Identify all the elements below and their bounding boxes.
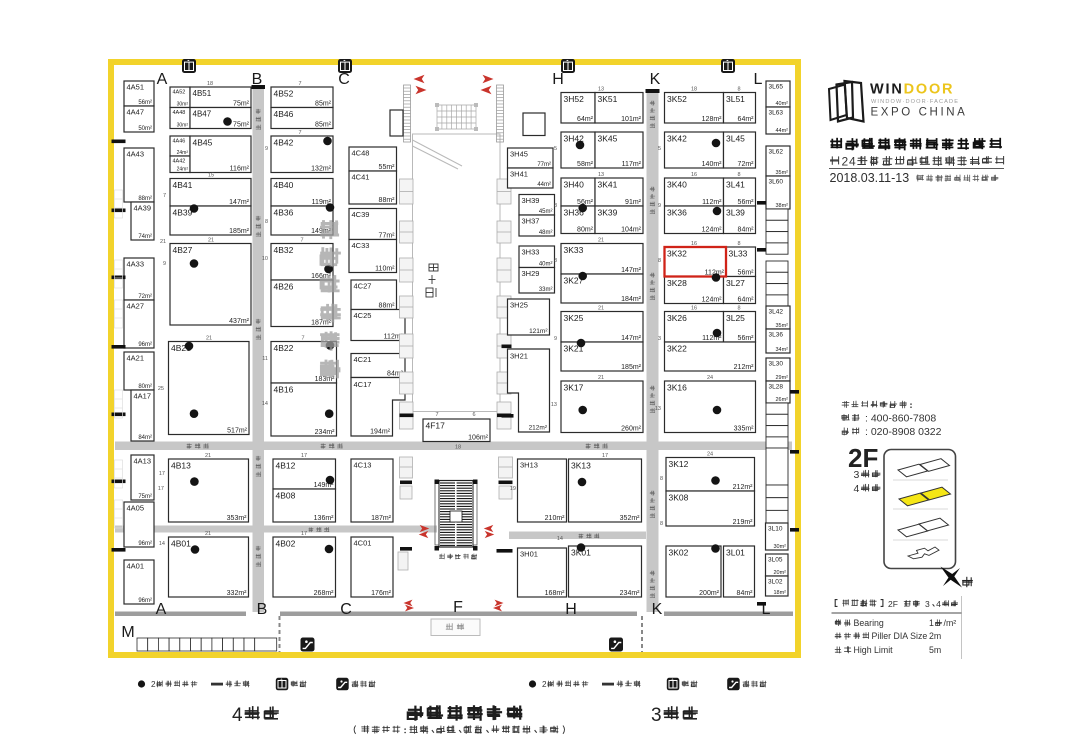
svg-text:2F: 2F — [888, 599, 898, 609]
svg-text:185m²: 185m² — [621, 364, 642, 371]
svg-text:4A13: 4A13 — [134, 457, 152, 466]
svg-text:3L39: 3L39 — [726, 208, 745, 218]
svg-text:9: 9 — [658, 203, 661, 209]
svg-text:4F17: 4F17 — [426, 421, 446, 431]
svg-text:80m²: 80m² — [577, 226, 594, 233]
svg-text:3K32: 3K32 — [667, 249, 687, 259]
svg-text:3L60: 3L60 — [769, 179, 784, 186]
svg-text:4: 4 — [849, 154, 856, 168]
svg-text:29m²: 29m² — [775, 375, 788, 381]
svg-text:335m²: 335m² — [734, 425, 755, 432]
svg-text:3L33: 3L33 — [729, 249, 748, 259]
svg-text:3K13: 3K13 — [571, 461, 591, 471]
svg-text:72m²: 72m² — [738, 161, 755, 168]
svg-text:3K39: 3K39 — [598, 208, 618, 218]
svg-text:91m²: 91m² — [625, 199, 642, 206]
svg-text:56m²: 56m² — [138, 100, 152, 106]
svg-text:5: 5 — [554, 146, 557, 152]
svg-text:88m²: 88m² — [138, 196, 152, 202]
svg-text:3H21: 3H21 — [510, 352, 528, 361]
svg-text:B: B — [252, 71, 263, 88]
svg-text:3L36: 3L36 — [769, 332, 784, 339]
svg-text:11: 11 — [262, 356, 268, 362]
svg-text:2: 2 — [151, 680, 156, 689]
svg-text:4C01: 4C01 — [354, 539, 372, 548]
svg-text:30m²: 30m² — [177, 101, 189, 107]
svg-text:117m²: 117m² — [622, 161, 642, 168]
svg-text:17: 17 — [602, 453, 608, 459]
svg-text:4B32: 4B32 — [274, 245, 294, 255]
svg-text:3H33: 3H33 — [522, 248, 540, 257]
svg-text:3H01: 3H01 — [520, 550, 538, 559]
svg-text:21: 21 — [205, 453, 211, 459]
svg-text:4A52: 4A52 — [173, 90, 186, 96]
svg-text:C: C — [338, 71, 350, 88]
svg-text:2018.03.11-13: 2018.03.11-13 — [830, 171, 910, 185]
svg-text:3L62: 3L62 — [769, 149, 784, 156]
svg-text:4A05: 4A05 — [127, 504, 145, 513]
svg-text:H: H — [565, 601, 577, 618]
svg-text:3L65: 3L65 — [769, 84, 784, 91]
svg-text:18: 18 — [207, 81, 213, 87]
svg-text:58m²: 58m² — [577, 161, 594, 168]
svg-text:8: 8 — [737, 306, 740, 312]
svg-text:3: 3 — [658, 336, 661, 342]
svg-text:55m²: 55m² — [379, 164, 396, 171]
svg-text:13: 13 — [655, 406, 661, 412]
svg-text:4B27: 4B27 — [173, 245, 193, 255]
svg-text:18: 18 — [455, 445, 461, 451]
svg-text:74m²: 74m² — [138, 234, 152, 240]
svg-text:17: 17 — [158, 486, 164, 492]
svg-text:3H37: 3H37 — [522, 217, 540, 226]
svg-text:6: 6 — [472, 412, 475, 418]
svg-text:4: 4 — [232, 705, 243, 726]
svg-text:84m²: 84m² — [138, 435, 152, 441]
svg-text:4B01: 4B01 — [171, 539, 191, 549]
svg-text:9: 9 — [163, 261, 166, 267]
svg-text:112m²: 112m² — [702, 199, 722, 206]
svg-text:3K22: 3K22 — [667, 344, 687, 354]
svg-text:8: 8 — [554, 258, 557, 264]
svg-text:96m²: 96m² — [138, 541, 152, 547]
svg-text:3K02: 3K02 — [669, 548, 689, 558]
svg-text:110m²: 110m² — [375, 265, 395, 272]
svg-text:4C41: 4C41 — [352, 173, 370, 182]
svg-text:18: 18 — [691, 87, 697, 93]
svg-text:44m²: 44m² — [775, 128, 788, 134]
svg-text:15: 15 — [208, 173, 214, 179]
svg-text:EXPO CHINA: EXPO CHINA — [871, 107, 968, 119]
svg-text:4A47: 4A47 — [127, 108, 145, 117]
svg-text:116m²: 116m² — [230, 165, 250, 172]
svg-text:Piller DIA Size: Piller DIA Size — [872, 631, 928, 641]
svg-text:21: 21 — [206, 336, 212, 342]
svg-text:4B26: 4B26 — [274, 282, 294, 292]
svg-text:210m²: 210m² — [545, 515, 566, 522]
svg-text:147m²: 147m² — [229, 199, 250, 206]
svg-text:8: 8 — [737, 172, 740, 178]
svg-text:8: 8 — [737, 241, 740, 247]
svg-text:24: 24 — [707, 375, 713, 381]
svg-text:3: 3 — [651, 705, 662, 726]
svg-text:4B12: 4B12 — [276, 461, 296, 471]
svg-text:8: 8 — [265, 219, 268, 225]
svg-text:3H29: 3H29 — [522, 269, 540, 278]
svg-text:4A43: 4A43 — [127, 150, 145, 159]
svg-text:80m²: 80m² — [138, 384, 152, 390]
svg-text:A: A — [157, 71, 168, 88]
svg-text:3K42: 3K42 — [667, 134, 687, 144]
svg-text:5m: 5m — [929, 645, 941, 655]
svg-text:194m²: 194m² — [370, 429, 391, 436]
svg-text:7: 7 — [298, 130, 301, 136]
svg-text:48m²: 48m² — [539, 230, 553, 236]
svg-text:20m²: 20m² — [773, 570, 786, 576]
svg-text:140m²: 140m² — [702, 161, 723, 168]
svg-text:136m²: 136m² — [314, 515, 335, 522]
svg-text:13: 13 — [598, 87, 604, 93]
svg-text:3K52: 3K52 — [667, 94, 687, 104]
svg-text:85m²: 85m² — [315, 121, 332, 128]
svg-text:3L30: 3L30 — [769, 361, 784, 368]
svg-text:24m²: 24m² — [177, 150, 189, 156]
svg-text:40m²: 40m² — [539, 261, 553, 267]
svg-text:4C13: 4C13 — [354, 461, 372, 470]
svg-text:3H13: 3H13 — [520, 461, 538, 470]
svg-text:17: 17 — [301, 453, 307, 459]
svg-text:1: 1 — [929, 618, 934, 628]
svg-text:77m²: 77m² — [537, 162, 551, 168]
svg-text:3L10: 3L10 — [768, 526, 783, 533]
svg-text:16: 16 — [691, 172, 697, 178]
svg-text:16: 16 — [691, 241, 697, 247]
svg-text:185m²: 185m² — [229, 228, 250, 235]
svg-text:64m²: 64m² — [738, 296, 755, 303]
svg-text:: 020-8908 0322: : 020-8908 0322 — [865, 426, 942, 438]
svg-text:4B13: 4B13 — [171, 461, 191, 471]
svg-text:21: 21 — [598, 238, 604, 244]
svg-text:9: 9 — [265, 146, 268, 152]
svg-text:: 400-860-7808: : 400-860-7808 — [865, 413, 936, 425]
svg-text:13: 13 — [598, 172, 604, 178]
svg-text:40m²: 40m² — [775, 101, 788, 107]
svg-text:4C48: 4C48 — [352, 149, 370, 158]
svg-text:219m²: 219m² — [733, 519, 754, 526]
svg-text:3L05: 3L05 — [768, 557, 783, 564]
svg-text:34m²: 34m² — [775, 347, 788, 353]
svg-text:75m²: 75m² — [233, 121, 250, 128]
svg-text:4A39: 4A39 — [134, 204, 152, 213]
svg-text:8: 8 — [660, 476, 663, 482]
svg-text:3K25: 3K25 — [564, 313, 584, 323]
svg-text:21: 21 — [208, 238, 214, 244]
svg-text:64m²: 64m² — [577, 116, 594, 123]
svg-text:2: 2 — [542, 680, 547, 689]
svg-text:25: 25 — [158, 386, 164, 392]
svg-text:4C39: 4C39 — [352, 210, 370, 219]
svg-text:106m²: 106m² — [468, 434, 489, 441]
svg-text:L: L — [754, 71, 763, 88]
svg-text:56m²: 56m² — [738, 335, 755, 342]
svg-text:4B42: 4B42 — [274, 138, 294, 148]
svg-text:7: 7 — [300, 238, 303, 244]
svg-text:56m²: 56m² — [738, 269, 755, 276]
svg-text:24: 24 — [707, 452, 713, 458]
svg-text:4B36: 4B36 — [274, 208, 294, 218]
svg-text:147m²: 147m² — [621, 335, 642, 342]
svg-text:A: A — [156, 601, 167, 618]
svg-text:517m²: 517m² — [227, 427, 248, 434]
svg-text:85m²: 85m² — [315, 100, 332, 107]
svg-text:437m²: 437m² — [229, 318, 250, 325]
svg-text:3K26: 3K26 — [667, 313, 687, 323]
svg-text:4B16: 4B16 — [274, 385, 294, 395]
svg-text:High Limit: High Limit — [854, 645, 894, 655]
svg-text:F: F — [453, 599, 463, 616]
svg-text:4A42: 4A42 — [173, 159, 186, 165]
svg-text:75m²: 75m² — [138, 494, 152, 500]
svg-text:4B52: 4B52 — [274, 89, 294, 99]
svg-text:35m²: 35m² — [775, 170, 788, 176]
svg-text:128m²: 128m² — [702, 116, 723, 123]
svg-text:18m²: 18m² — [773, 590, 786, 596]
svg-text:8: 8 — [554, 203, 557, 209]
svg-text:132m²: 132m² — [311, 165, 332, 172]
svg-text:4: 4 — [854, 483, 860, 495]
svg-text:3L63: 3L63 — [769, 110, 784, 117]
svg-text:17: 17 — [159, 471, 165, 477]
svg-text:4B45: 4B45 — [193, 138, 213, 148]
svg-text:212m²: 212m² — [734, 364, 755, 371]
svg-text:3L51: 3L51 — [726, 94, 745, 104]
svg-text:4B22: 4B22 — [274, 343, 294, 353]
svg-text:7: 7 — [163, 193, 166, 199]
svg-text:352m²: 352m² — [620, 515, 641, 522]
svg-text:88m²: 88m² — [379, 302, 396, 309]
svg-text:14: 14 — [159, 541, 165, 547]
svg-text:B: B — [257, 601, 268, 618]
svg-text:21: 21 — [160, 239, 166, 245]
svg-text:212m²: 212m² — [529, 425, 548, 432]
svg-text:3L25: 3L25 — [726, 313, 745, 323]
svg-text:353m²: 353m² — [227, 515, 248, 522]
svg-text:3K51: 3K51 — [598, 94, 618, 104]
svg-text:K: K — [652, 601, 663, 618]
svg-text:4: 4 — [936, 599, 941, 609]
svg-text:4C25: 4C25 — [354, 311, 372, 320]
svg-text:332m²: 332m² — [227, 590, 248, 597]
svg-text:3K16: 3K16 — [667, 383, 687, 393]
svg-text:4A33: 4A33 — [127, 260, 145, 269]
svg-text:147m²: 147m² — [621, 267, 642, 274]
svg-text:4B51: 4B51 — [193, 89, 212, 98]
svg-text:21: 21 — [205, 531, 211, 537]
svg-text:H: H — [552, 71, 564, 88]
svg-text:2m: 2m — [929, 631, 941, 641]
svg-text:4A17: 4A17 — [134, 392, 152, 401]
svg-text:14: 14 — [557, 536, 563, 542]
svg-text:4B41: 4B41 — [173, 180, 193, 190]
svg-text:4C33: 4C33 — [352, 241, 370, 250]
svg-text:3H45: 3H45 — [510, 150, 528, 159]
svg-text:7: 7 — [435, 412, 438, 418]
svg-text:3L02: 3L02 — [768, 579, 783, 586]
svg-text:124m²: 124m² — [702, 296, 723, 303]
svg-text:96m²: 96m² — [138, 598, 152, 604]
svg-text:4C27: 4C27 — [354, 282, 372, 291]
svg-text:33m²: 33m² — [539, 287, 553, 293]
svg-text:4B39: 4B39 — [173, 208, 193, 218]
svg-text:8: 8 — [658, 258, 661, 264]
svg-text:4A46: 4A46 — [173, 139, 186, 145]
svg-text:72m²: 72m² — [138, 294, 152, 300]
svg-text:84m²: 84m² — [738, 226, 755, 233]
svg-text:96m²: 96m² — [138, 342, 152, 348]
svg-text:101m²: 101m² — [621, 116, 642, 123]
svg-text:121m²: 121m² — [529, 328, 548, 335]
svg-text:14: 14 — [262, 401, 268, 407]
svg-text:44m²: 44m² — [537, 182, 551, 188]
svg-text:3K12: 3K12 — [669, 459, 689, 469]
svg-text:3L01: 3L01 — [726, 548, 745, 558]
svg-text:/m²: /m² — [944, 618, 957, 628]
svg-text:4C17: 4C17 — [354, 380, 372, 389]
svg-text:3K33: 3K33 — [564, 245, 584, 255]
svg-text:10: 10 — [262, 256, 268, 262]
svg-text:9: 9 — [554, 336, 557, 342]
svg-text:4B46: 4B46 — [274, 109, 294, 119]
svg-text:168m²: 168m² — [545, 590, 566, 597]
svg-text:7: 7 — [301, 336, 304, 342]
svg-text:3L45: 3L45 — [726, 134, 745, 144]
svg-text:3L42: 3L42 — [769, 309, 784, 316]
svg-text:4A48: 4A48 — [173, 110, 186, 116]
svg-text:4A01: 4A01 — [127, 562, 145, 571]
svg-text:Bearing: Bearing — [854, 618, 884, 628]
svg-text:4B08: 4B08 — [276, 491, 296, 501]
svg-text:24m²: 24m² — [177, 166, 189, 172]
svg-text:88m²: 88m² — [379, 197, 396, 204]
svg-text:184m²: 184m² — [621, 296, 642, 303]
svg-text:3K41: 3K41 — [598, 180, 618, 190]
svg-text:3K40: 3K40 — [667, 180, 687, 190]
svg-text:176m²: 176m² — [371, 590, 392, 597]
svg-text:3K36: 3K36 — [667, 208, 687, 218]
svg-text:3K08: 3K08 — [669, 493, 689, 503]
svg-text:3L41: 3L41 — [726, 180, 745, 190]
svg-text:187m²: 187m² — [371, 515, 392, 522]
svg-text:C: C — [340, 601, 352, 618]
svg-text:4C21: 4C21 — [354, 355, 372, 364]
svg-text:4A27: 4A27 — [127, 302, 145, 311]
svg-text:3H52: 3H52 — [564, 94, 585, 104]
svg-text:2: 2 — [842, 154, 849, 168]
svg-text:17: 17 — [301, 531, 307, 537]
svg-text:75m²: 75m² — [233, 100, 250, 107]
svg-text:104m²: 104m² — [621, 226, 642, 233]
svg-text:35m²: 35m² — [775, 323, 788, 329]
svg-text:84m²: 84m² — [737, 590, 754, 597]
svg-text:260m²: 260m² — [621, 425, 642, 432]
svg-text:3: 3 — [925, 599, 930, 609]
svg-text:8: 8 — [737, 87, 740, 93]
svg-text:3L28: 3L28 — [769, 384, 784, 391]
svg-text:56m²: 56m² — [738, 199, 755, 206]
svg-text:38m²: 38m² — [775, 203, 788, 209]
svg-text:19: 19 — [510, 486, 516, 492]
svg-text:212m²: 212m² — [733, 484, 754, 491]
svg-text:3K45: 3K45 — [598, 134, 618, 144]
svg-text:3H39: 3H39 — [522, 196, 540, 205]
svg-text:21: 21 — [598, 306, 604, 312]
svg-text:7: 7 — [298, 81, 301, 87]
svg-text:3H41: 3H41 — [510, 170, 528, 179]
svg-text:77m²: 77m² — [379, 232, 396, 239]
svg-text:234m²: 234m² — [315, 429, 336, 436]
svg-text:124m²: 124m² — [702, 226, 723, 233]
svg-text:268m²: 268m² — [314, 590, 335, 597]
svg-text:200m²: 200m² — [699, 590, 720, 597]
svg-text:4B02: 4B02 — [276, 539, 296, 549]
svg-text:WINDOOR: WINDOOR — [870, 82, 954, 98]
svg-text:30m²: 30m² — [177, 122, 189, 128]
svg-text:8: 8 — [660, 521, 663, 527]
svg-text:4A21: 4A21 — [127, 354, 145, 363]
svg-text:M: M — [121, 624, 134, 641]
svg-text:3H40: 3H40 — [564, 180, 585, 190]
svg-text:WINDOW·DOOR·FACADE: WINDOW·DOOR·FACADE — [871, 99, 959, 105]
svg-text:3L27: 3L27 — [726, 278, 745, 288]
svg-text:3: 3 — [854, 469, 860, 481]
svg-text:3K17: 3K17 — [564, 383, 584, 393]
svg-text:30m²: 30m² — [773, 544, 786, 550]
svg-text:5: 5 — [658, 146, 661, 152]
svg-text:3K28: 3K28 — [667, 278, 687, 288]
svg-text:64m²: 64m² — [738, 116, 755, 123]
svg-text:3H25: 3H25 — [510, 301, 528, 310]
svg-text:K: K — [650, 71, 661, 88]
svg-text:4A51: 4A51 — [127, 83, 145, 92]
svg-text:26m²: 26m² — [775, 397, 788, 403]
svg-text:21: 21 — [598, 375, 604, 381]
svg-text:13: 13 — [551, 402, 557, 408]
svg-text:234m²: 234m² — [620, 590, 641, 597]
svg-text:16: 16 — [691, 306, 697, 312]
svg-text:50m²: 50m² — [138, 126, 152, 132]
svg-text:45m²: 45m² — [539, 209, 553, 215]
svg-text:4B47: 4B47 — [193, 110, 212, 119]
svg-text:4B40: 4B40 — [274, 180, 294, 190]
